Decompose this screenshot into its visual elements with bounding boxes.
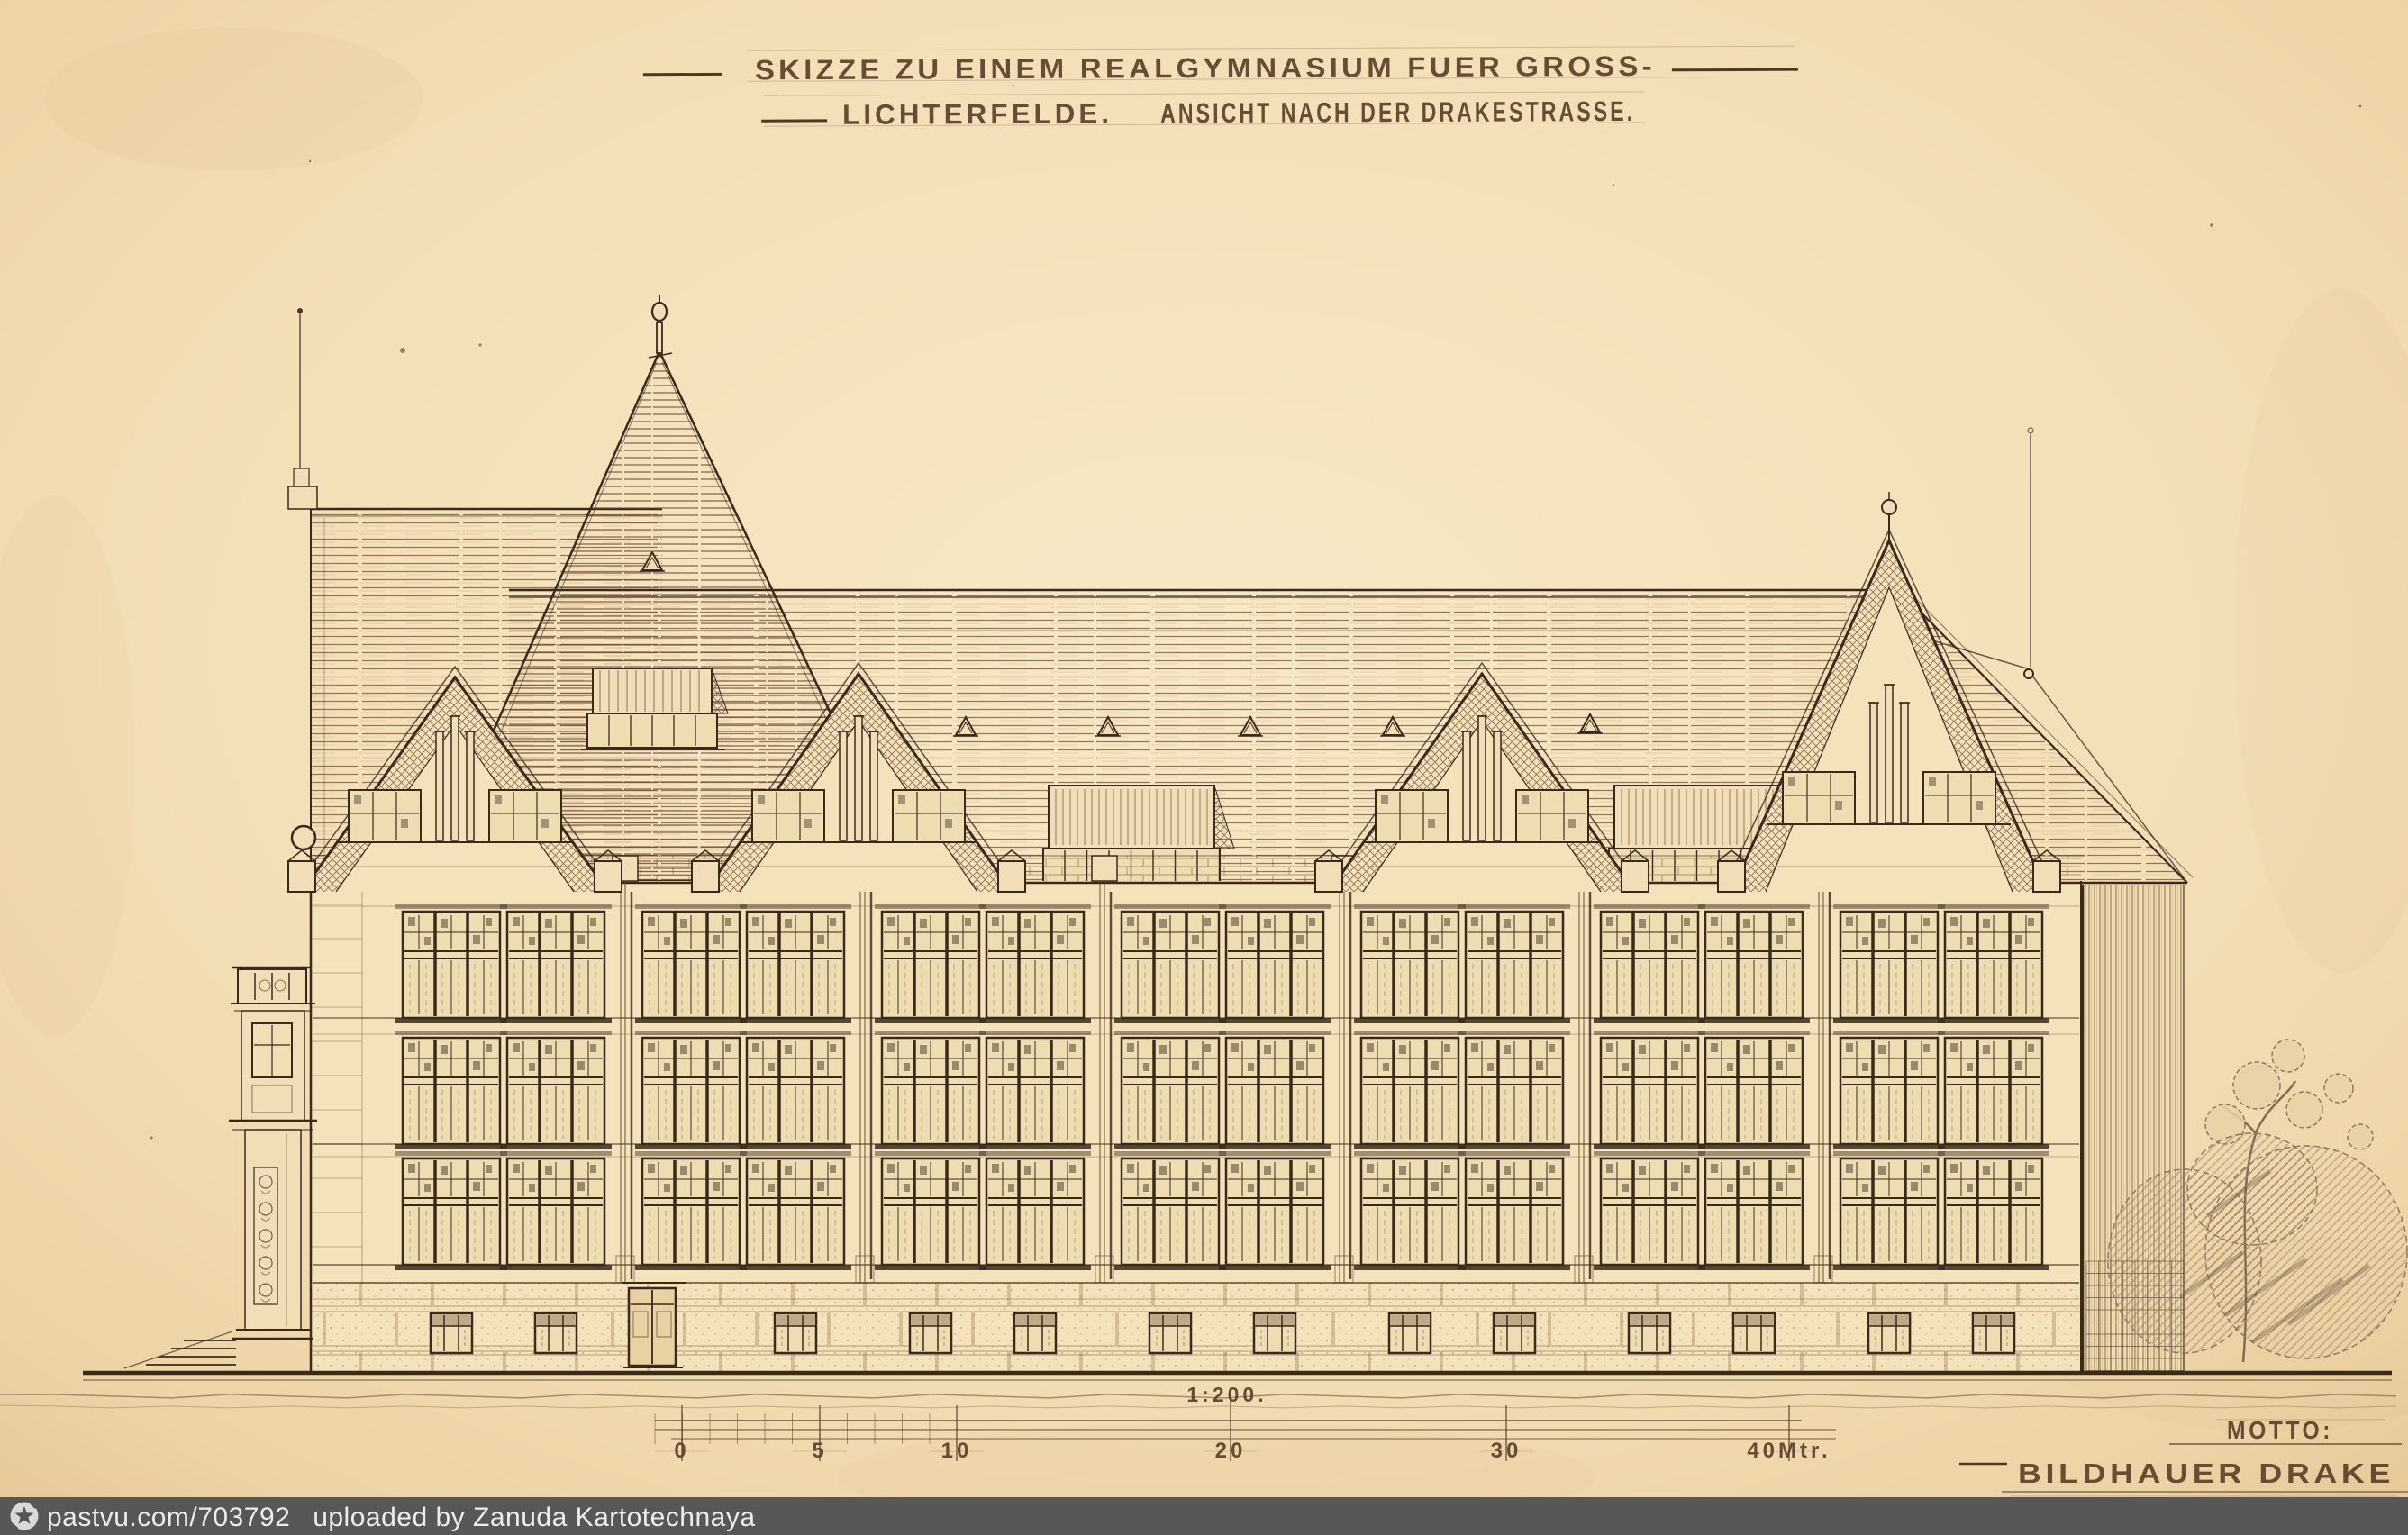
window-group — [1114, 904, 1226, 1023]
watermark-uploader: uploaded by Zanuda Kartotechnaya — [313, 1503, 755, 1532]
window-group — [1594, 1151, 1705, 1270]
small-window — [1149, 1313, 1191, 1353]
tower-dormer — [581, 668, 728, 749]
scale-tick-label: 30 — [1491, 1439, 1522, 1463]
small-window — [1014, 1313, 1056, 1353]
small-window — [1494, 1313, 1535, 1353]
paper-speck — [150, 1137, 153, 1140]
small-window — [1254, 1313, 1295, 1353]
window-group — [395, 1151, 507, 1270]
window-group — [1594, 1031, 1705, 1149]
paper-speck — [400, 348, 405, 353]
window-group — [875, 1151, 986, 1270]
scale-tick-label: 5 — [812, 1439, 827, 1463]
window-group — [1938, 1151, 2049, 1270]
window-group — [1114, 1031, 1226, 1149]
window-group — [1938, 1031, 2049, 1149]
window-group — [395, 1031, 507, 1149]
ridge-finial — [2024, 669, 2033, 678]
small-window — [1973, 1313, 2014, 1353]
window-group — [979, 1151, 1091, 1270]
small-window — [910, 1313, 951, 1353]
small-window — [775, 1313, 816, 1353]
window-group — [635, 904, 747, 1023]
window-group — [1219, 1151, 1331, 1270]
tower-finial — [652, 303, 667, 321]
window-group — [1698, 904, 1810, 1023]
window-group — [1938, 904, 2049, 1023]
window-group — [1833, 1151, 1945, 1270]
window-group — [500, 1151, 612, 1270]
window-group — [500, 1031, 612, 1149]
window-group — [1219, 1031, 1331, 1149]
window-group — [1354, 1151, 1466, 1270]
window-group — [1698, 1151, 1810, 1270]
window-group — [1458, 904, 1570, 1023]
window-group — [875, 904, 986, 1023]
small-window — [1733, 1313, 1775, 1353]
scale-tick-label: 10 — [941, 1439, 973, 1463]
window-group — [1354, 1031, 1466, 1149]
paper-speck — [1613, 184, 1614, 186]
watermark-site-ref: pastvu.com/703792 — [47, 1503, 290, 1532]
window-group — [1458, 1031, 1570, 1149]
paper-speck — [1013, 85, 1014, 86]
small-window — [1868, 1313, 1910, 1353]
window-group — [395, 904, 507, 1023]
window-group — [1219, 904, 1331, 1023]
window-group — [1354, 904, 1466, 1023]
window-group — [500, 904, 612, 1023]
screenshot-root: SKIZZE ZU EINEM REALGYMNASIUM FUER GROSS… — [0, 0, 2408, 1535]
window-group — [1458, 1151, 1570, 1270]
entrance-door — [622, 1283, 686, 1367]
window-group — [979, 904, 1091, 1023]
window-group — [740, 1151, 851, 1270]
window-group — [1833, 1031, 1945, 1149]
window-group — [635, 1151, 747, 1270]
small-window — [1389, 1313, 1431, 1353]
scale-tick-label: 20 — [1215, 1439, 1247, 1463]
scale-tick-label: 40Mtr. — [1747, 1439, 1831, 1463]
scale-tick-label: 0 — [674, 1439, 689, 1463]
motto-label: MOTTO: — [2227, 1416, 2333, 1444]
window-group — [740, 1031, 851, 1149]
title-line-2b: ANSICHT NACH DER DRAKESTRASSE. — [1160, 95, 1635, 129]
motto-value: BILDHAUER DRAKE — [2018, 1458, 2394, 1489]
facade — [304, 856, 2187, 1373]
watermark-bar: pastvu.com/703792 uploaded by Zanuda Kar… — [0, 1497, 2408, 1535]
window-group — [740, 904, 851, 1023]
small-window — [1629, 1313, 1670, 1353]
svg-text:pastvu.com/703792 upload: pastvu.com/703792 uploaded by Zanuda Kar… — [47, 1503, 756, 1532]
window-group — [979, 1031, 1091, 1149]
paper-speck — [478, 343, 481, 346]
archival-drawing-scan: SKIZZE ZU EINEM REALGYMNASIUM FUER GROSS… — [0, 0, 2408, 1535]
paper-speck — [309, 160, 311, 162]
window-group — [1114, 1151, 1226, 1270]
small-window — [535, 1313, 577, 1353]
small-window — [431, 1313, 472, 1353]
window-group — [1698, 1031, 1810, 1149]
window-group — [1594, 904, 1705, 1023]
window-group — [635, 1031, 747, 1149]
title-line-2a: LICHTERFELDE. — [842, 98, 1113, 131]
window-group — [1833, 904, 1945, 1023]
window-group — [875, 1031, 986, 1149]
title-line-1: SKIZZE ZU EINEM REALGYMNASIUM FUER GROSS… — [755, 50, 1656, 86]
paper-speck — [2210, 223, 2213, 227]
paper-speck — [2359, 105, 2362, 108]
